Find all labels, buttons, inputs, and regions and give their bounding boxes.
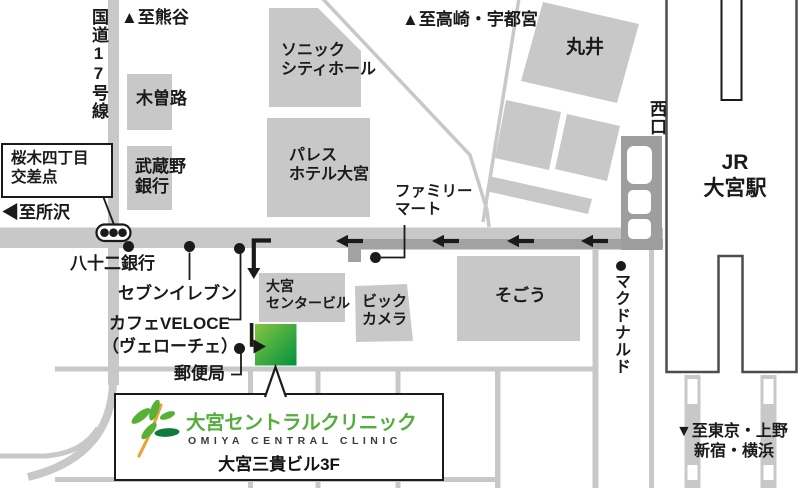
palace-hotel-label: パレス ホテル大宮 [289,147,369,185]
family-mart-dot [370,252,381,263]
sogo-label: そごう [495,286,546,306]
traffic-signal-icon [97,225,131,242]
station-name-label: JR 大宮駅 [690,150,780,201]
clinic-name-en: OMIYA CENTRAL CLINIC [188,435,402,447]
route17-road-curve [28,382,113,477]
station-front-block-3 [486,176,592,214]
hachijuni-bank-dot [123,241,134,252]
seven-eleven-dot [184,241,195,252]
post-office-label: 郵便局 [174,364,225,384]
sign-to-takasaki-utsunomiya: ▲至高崎・宇都宮 [402,10,538,30]
seven-eleven-label: セブンイレブン [118,284,237,304]
kisoji-label: 木曽路 [136,89,187,109]
cafe-veloce-label-2: （ヴェローチェ） [102,337,238,357]
bic-camera-label: ビック カメラ [362,293,407,328]
intersection-callout: 桜木四丁目 交差点 [1,143,113,198]
clinic-callout: 大宮セントラルクリニック OMIYA CENTRAL CLINIC 大宮三貴ビル… [114,393,444,481]
west-exit-deck [621,136,662,250]
sign-to-kumagaya: ▲至熊谷 [121,8,189,28]
station-front-block-2 [555,114,620,181]
sign-to-shinjuku-yokohama: 新宿・横浜 [694,443,774,462]
railway-track-north [722,0,742,100]
route17-label: 国道17号線 [86,8,111,120]
family-mart-label: ファミリー マート [395,183,473,220]
omiya-center-building-label: 大宮 センタービル [266,278,350,311]
access-map: 国道17号線 ▲至熊谷 ▲至高崎・宇都宮 木曽路 武蔵野 銀行 ソニック シティ… [0,0,800,488]
sign-to-tokyo-ueno: ▼至東京・上野 [676,423,788,442]
station-front-block-1 [495,100,561,170]
cafe-veloce-label: カフェVELOCE [109,314,230,334]
sign-to-tokorozawa: ◀至所沢 [2,203,70,223]
clinic-address: 大宮三貴ビル3F [116,450,442,475]
cafe-veloce-dot [234,243,245,254]
musashino-bank-label: 武蔵野 銀行 [135,157,186,197]
marui-label: 丸井 [566,37,604,59]
clinic-name-ja: 大宮セントラルクリニック [186,406,416,435]
mcdonalds-dot [616,261,626,271]
hachijuni-bank-label: 八十二銀行 [70,254,155,274]
west-exit-label: 西口 [644,100,669,136]
callout-pointer [262,364,290,398]
mcdonalds-label: マクドナルド [608,273,632,375]
sonic-city-hall-label: ソニック シティホール [281,42,376,80]
